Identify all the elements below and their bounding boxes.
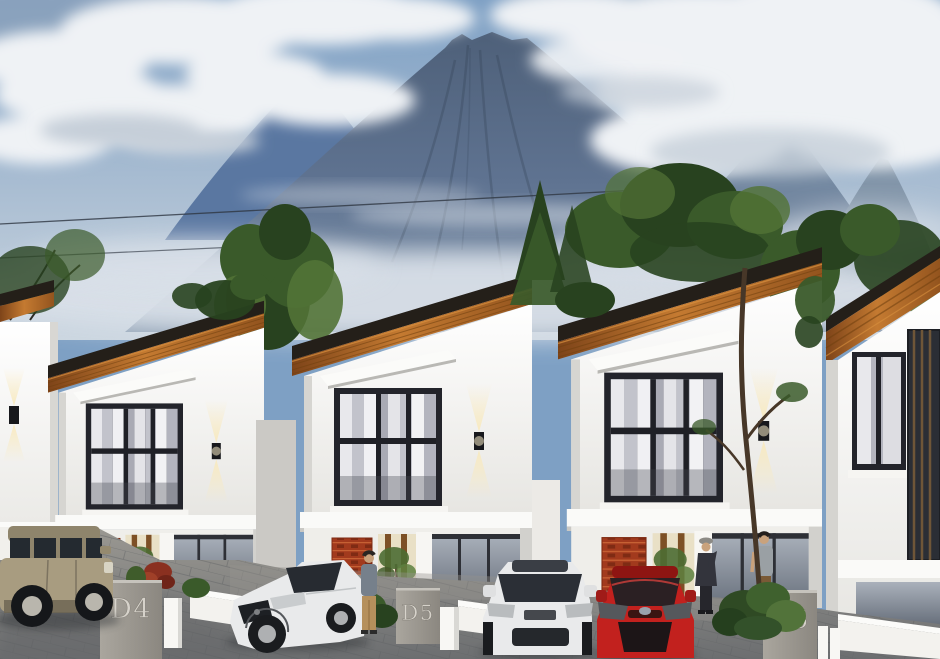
foliage-over-d6-roof [555, 282, 615, 318]
scene-canvas: D4 D5 D6 [0, 0, 940, 659]
white-sedan [483, 560, 597, 655]
pillar-d5: D5 [396, 588, 440, 644]
house-d3-partial [0, 280, 58, 562]
suv-tan [0, 526, 113, 627]
side-wall-d4-d5 [256, 420, 296, 570]
pillar-d5-label: D5 [401, 601, 434, 625]
architectural-rendering: D4 D5 D6 [0, 0, 940, 659]
person-by-coupe [361, 552, 377, 634]
